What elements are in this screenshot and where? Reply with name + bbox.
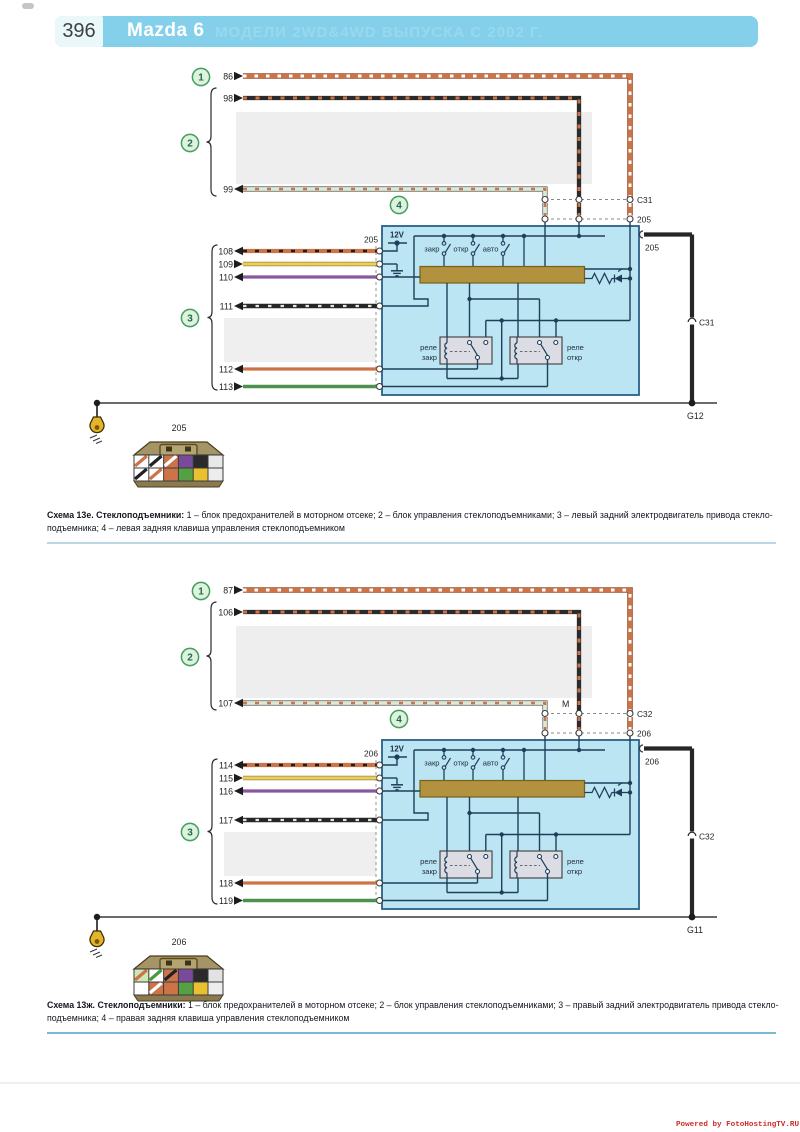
svg-text:реле: реле bbox=[567, 343, 584, 352]
svg-text:авто: авто bbox=[483, 244, 499, 253]
svg-text:реле: реле bbox=[420, 857, 437, 866]
svg-text:205: 205 bbox=[645, 243, 659, 253]
svg-text:4: 4 bbox=[396, 201, 402, 212]
svg-text:закр: закр bbox=[424, 758, 439, 767]
svg-text:111: 111 bbox=[220, 301, 233, 311]
svg-text:1: 1 bbox=[198, 587, 204, 598]
svg-text:206: 206 bbox=[172, 937, 187, 947]
svg-text:113: 113 bbox=[219, 382, 233, 392]
svg-text:116: 116 bbox=[219, 786, 233, 796]
svg-text:откр: откр bbox=[567, 353, 582, 362]
svg-text:110: 110 bbox=[219, 272, 233, 282]
svg-text:C31: C31 bbox=[637, 195, 653, 205]
svg-text:C32: C32 bbox=[699, 832, 715, 842]
svg-text:206: 206 bbox=[645, 757, 659, 767]
svg-text:98: 98 bbox=[223, 94, 233, 104]
svg-text:G12: G12 bbox=[687, 411, 704, 421]
svg-text:119: 119 bbox=[219, 896, 233, 906]
svg-text:C32: C32 bbox=[637, 709, 653, 719]
svg-text:87: 87 bbox=[223, 586, 233, 596]
svg-text:закр: закр bbox=[422, 867, 437, 876]
svg-text:106: 106 bbox=[218, 608, 233, 618]
svg-text:1: 1 bbox=[198, 73, 204, 84]
svg-text:115: 115 bbox=[219, 773, 233, 783]
svg-text:закр: закр bbox=[424, 244, 439, 253]
svg-text:2: 2 bbox=[187, 139, 193, 150]
svg-text:117: 117 bbox=[219, 815, 233, 825]
svg-text:108: 108 bbox=[218, 246, 233, 256]
svg-text:3: 3 bbox=[187, 314, 193, 325]
svg-text:откр: откр bbox=[453, 244, 468, 253]
svg-text:12V: 12V bbox=[390, 231, 405, 240]
svg-text:M: M bbox=[562, 699, 569, 709]
svg-text:C31: C31 bbox=[699, 318, 715, 328]
svg-text:3: 3 bbox=[187, 828, 193, 839]
svg-text:авто: авто bbox=[483, 758, 499, 767]
svg-text:реле: реле bbox=[567, 857, 584, 866]
svg-text:2: 2 bbox=[187, 653, 193, 664]
svg-text:205: 205 bbox=[172, 423, 187, 433]
svg-text:205: 205 bbox=[364, 235, 378, 245]
svg-text:99: 99 bbox=[223, 185, 233, 195]
svg-text:G11: G11 bbox=[687, 925, 703, 935]
svg-text:205: 205 bbox=[637, 215, 651, 225]
svg-text:откр: откр bbox=[453, 758, 468, 767]
svg-text:112: 112 bbox=[219, 364, 233, 374]
svg-text:118: 118 bbox=[219, 878, 233, 888]
svg-text:откр: откр bbox=[567, 867, 582, 876]
svg-text:закр: закр bbox=[422, 353, 437, 362]
svg-text:114: 114 bbox=[219, 760, 233, 770]
svg-text:реле: реле bbox=[420, 343, 437, 352]
svg-text:107: 107 bbox=[218, 699, 233, 709]
svg-text:12V: 12V bbox=[390, 745, 405, 754]
svg-text:109: 109 bbox=[218, 259, 233, 269]
svg-text:206: 206 bbox=[364, 749, 378, 759]
svg-text:86: 86 bbox=[223, 72, 233, 82]
svg-text:4: 4 bbox=[396, 715, 402, 726]
svg-text:206: 206 bbox=[637, 729, 651, 739]
